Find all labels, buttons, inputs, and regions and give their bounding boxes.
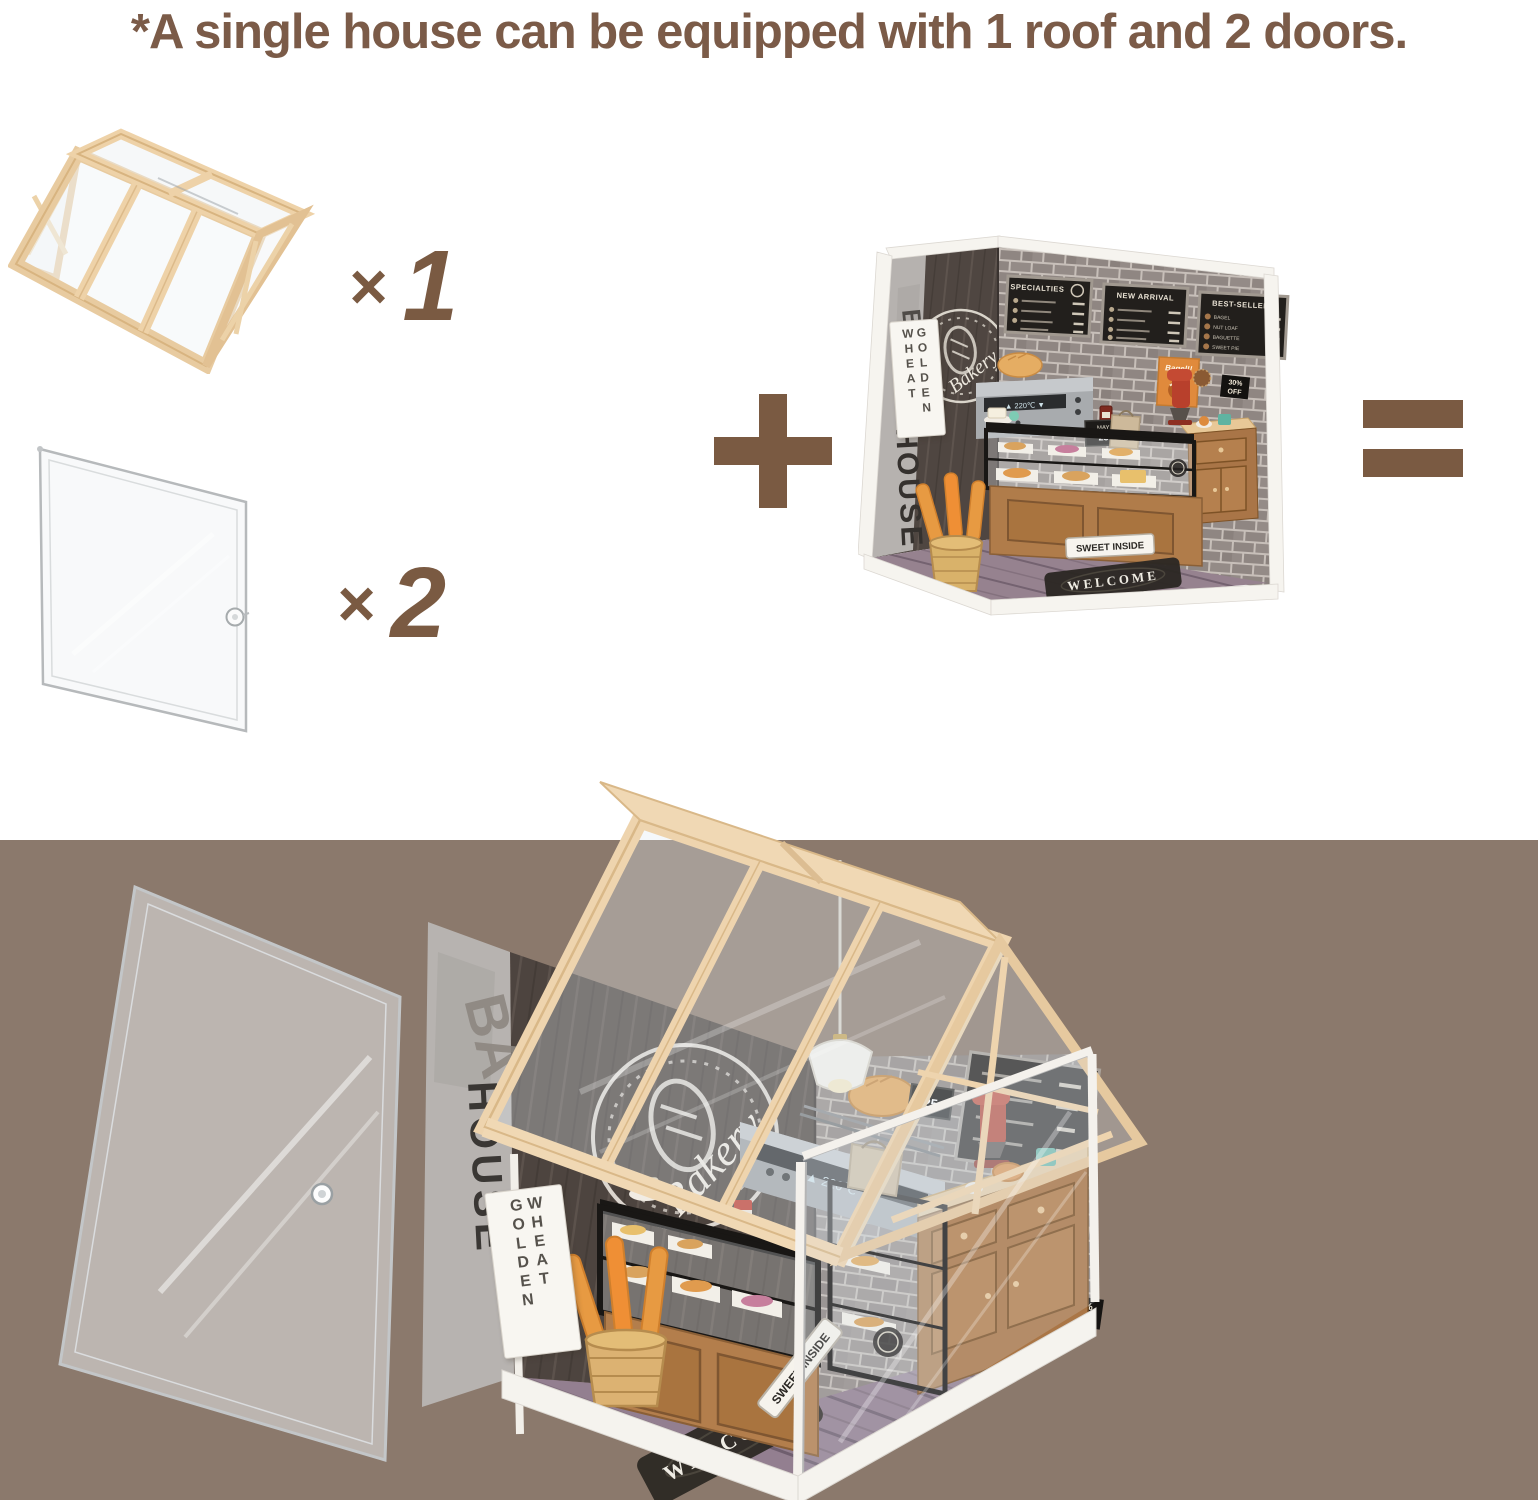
open-door-panel bbox=[60, 887, 400, 1460]
roof-count-number: 1 bbox=[403, 236, 459, 336]
door-knob bbox=[312, 1184, 332, 1204]
headline: *A single house can be equipped with 1 r… bbox=[0, 4, 1538, 60]
door-part-illustration bbox=[33, 424, 277, 758]
oven-display: ▲ 220℃ ▼ bbox=[1005, 400, 1045, 410]
equals-icon bbox=[1363, 400, 1464, 478]
roof-part-illustration bbox=[8, 126, 356, 374]
discount-tag: 30% OFF bbox=[1220, 375, 1250, 400]
teal-mug bbox=[1218, 414, 1231, 425]
display-case bbox=[986, 422, 1194, 498]
bread-bun bbox=[1199, 416, 1209, 426]
assembled-house: BA HOUSE Bakery Bagel! bbox=[40, 752, 1200, 1500]
door-count-label: × 2 bbox=[336, 538, 476, 668]
menu-board-specialties: SPECIALTIES bbox=[1005, 276, 1092, 336]
door-count-number: 2 bbox=[391, 553, 447, 653]
product-infographic: *A single house can be equipped with 1 r… bbox=[0, 0, 1538, 1500]
acrylic-door-panel bbox=[37, 446, 249, 731]
times-icon: × bbox=[348, 253, 387, 319]
times-icon: × bbox=[336, 570, 375, 636]
menu-item: BAGEL bbox=[1214, 315, 1231, 322]
menu-board-new-arrival: NEW ARRIVAL bbox=[1101, 284, 1188, 346]
bread-badge bbox=[1194, 370, 1211, 387]
sweet-inside-sign: SWEET INSIDE bbox=[1066, 534, 1155, 559]
roof-count-label: × 1 bbox=[348, 226, 478, 346]
wheat-golden-sign: WHEAT GOLDEN bbox=[889, 318, 946, 438]
plus-icon bbox=[712, 392, 836, 512]
door-hinge-pin bbox=[37, 446, 43, 452]
